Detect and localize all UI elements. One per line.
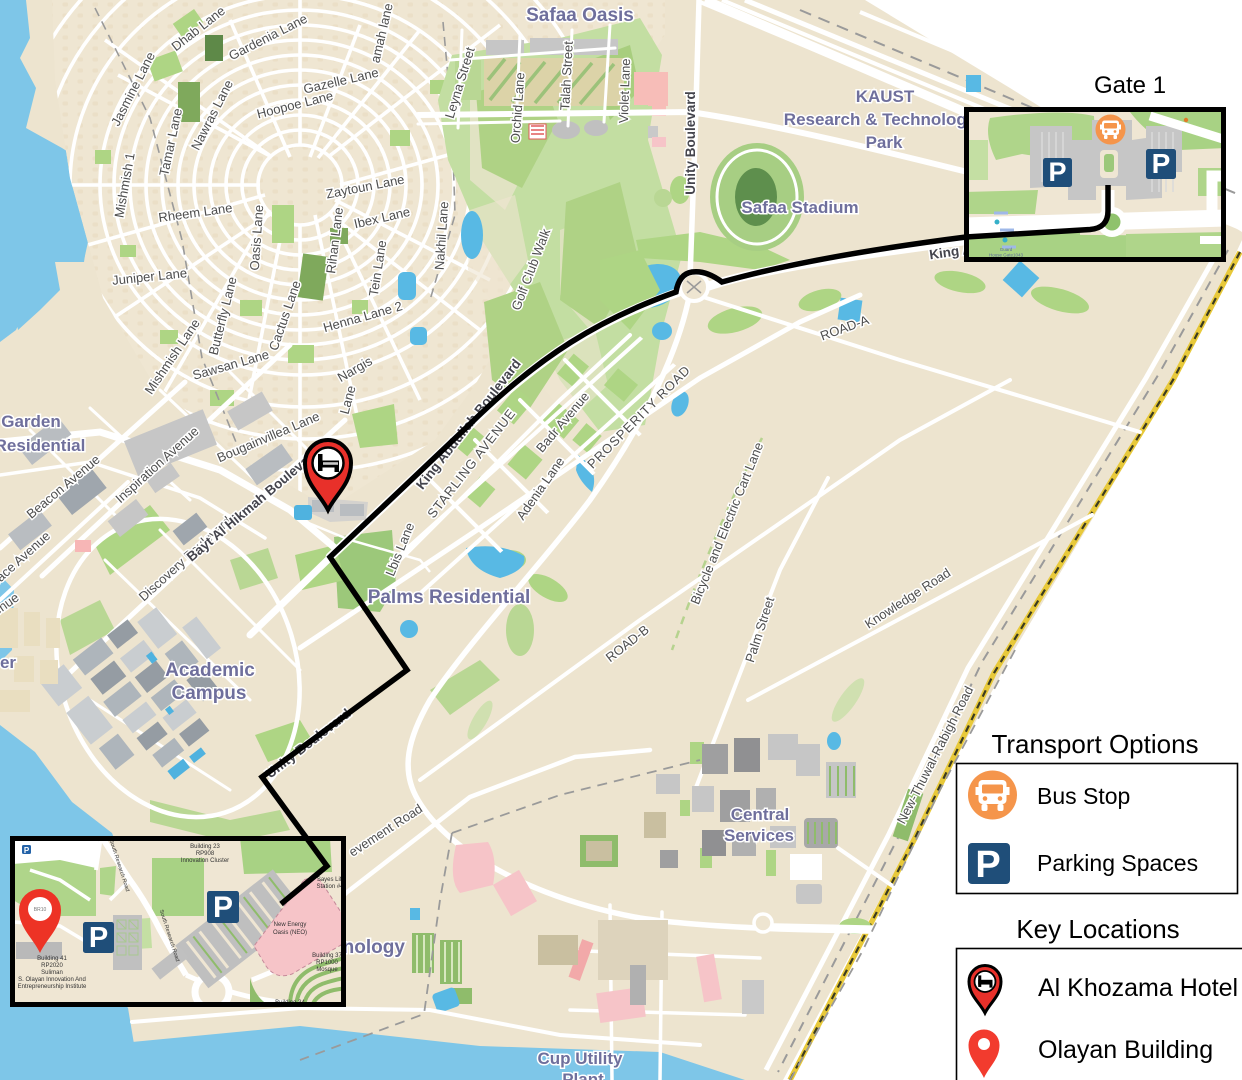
svg-text:Bus Stop: Bus Stop xyxy=(1037,783,1130,809)
svg-text:Innovation Cluster: Innovation Cluster xyxy=(181,858,229,864)
svg-text:Gate 1: Gate 1 xyxy=(1094,72,1166,99)
svg-text:P: P xyxy=(89,922,108,954)
svg-text:Academic: Academic xyxy=(165,660,255,681)
svg-text:Research & Technology: Research & Technology xyxy=(784,110,977,129)
svg-text:KAUST: KAUST xyxy=(856,87,915,106)
svg-text:Central: Central xyxy=(731,805,790,824)
svg-text:Station #4: Station #4 xyxy=(316,884,344,890)
svg-text:Olayan Building: Olayan Building xyxy=(1038,1036,1213,1064)
svg-text:Guard: Guard xyxy=(1000,247,1013,252)
svg-text:Safaa Stadium: Safaa Stadium xyxy=(741,198,858,217)
svg-text:Transport Options: Transport Options xyxy=(991,729,1198,759)
svg-text:Building 37: Building 37 xyxy=(312,953,342,959)
svg-text:P: P xyxy=(975,844,1000,886)
svg-text:Al Khozama Hotel: Al Khozama Hotel xyxy=(1038,974,1238,1002)
svg-text:Services: Services xyxy=(724,826,794,845)
svg-text:Parking Spaces: Parking Spaces xyxy=(1037,850,1198,876)
svg-text:Building 41: Building 41 xyxy=(37,956,67,962)
svg-text:Unity Boulevard: Unity Boulevard xyxy=(683,91,698,195)
svg-text:Safaa Oasis: Safaa Oasis xyxy=(526,5,634,26)
svg-text:Residential: Residential xyxy=(0,436,85,455)
svg-text:Suliman: Suliman xyxy=(41,970,63,976)
svg-text:Oasis (NEO): Oasis (NEO) xyxy=(273,930,307,936)
svg-text:RP2020: RP2020 xyxy=(41,963,63,969)
svg-text:RP908: RP908 xyxy=(196,851,215,857)
svg-text:Building 23: Building 23 xyxy=(190,844,220,850)
svg-text:S. Olayan Innovation And: S. Olayan Innovation And xyxy=(18,977,86,983)
svg-text:P: P xyxy=(213,891,233,924)
svg-text:Sayes Lift: Sayes Lift xyxy=(317,877,344,883)
svg-text:Entrepreneurship Institute: Entrepreneurship Institute xyxy=(18,984,87,990)
svg-text:Mosque: Mosque xyxy=(316,967,338,973)
svg-text:Plant: Plant xyxy=(562,1070,604,1080)
svg-text:Campus: Campus xyxy=(172,683,247,704)
svg-text:er: er xyxy=(0,653,16,672)
svg-text:House Gate1043: House Gate1043 xyxy=(989,253,1024,258)
svg-text:P: P xyxy=(1048,157,1066,187)
svg-text:New Energy: New Energy xyxy=(274,922,307,928)
svg-text:Key Locations: Key Locations xyxy=(1016,914,1179,944)
svg-text:Cup Utility: Cup Utility xyxy=(538,1049,624,1068)
svg-text:RP1000: RP1000 xyxy=(316,960,338,966)
svg-text:Park: Park xyxy=(866,133,903,152)
svg-text:Garden: Garden xyxy=(1,412,61,431)
svg-text:BR10: BR10 xyxy=(34,907,47,913)
svg-text:P: P xyxy=(24,846,30,855)
svg-text:P: P xyxy=(1152,148,1171,179)
svg-text:Violet Lane: Violet Lane xyxy=(616,58,633,123)
svg-text:Palms Residential: Palms Residential xyxy=(368,587,531,608)
